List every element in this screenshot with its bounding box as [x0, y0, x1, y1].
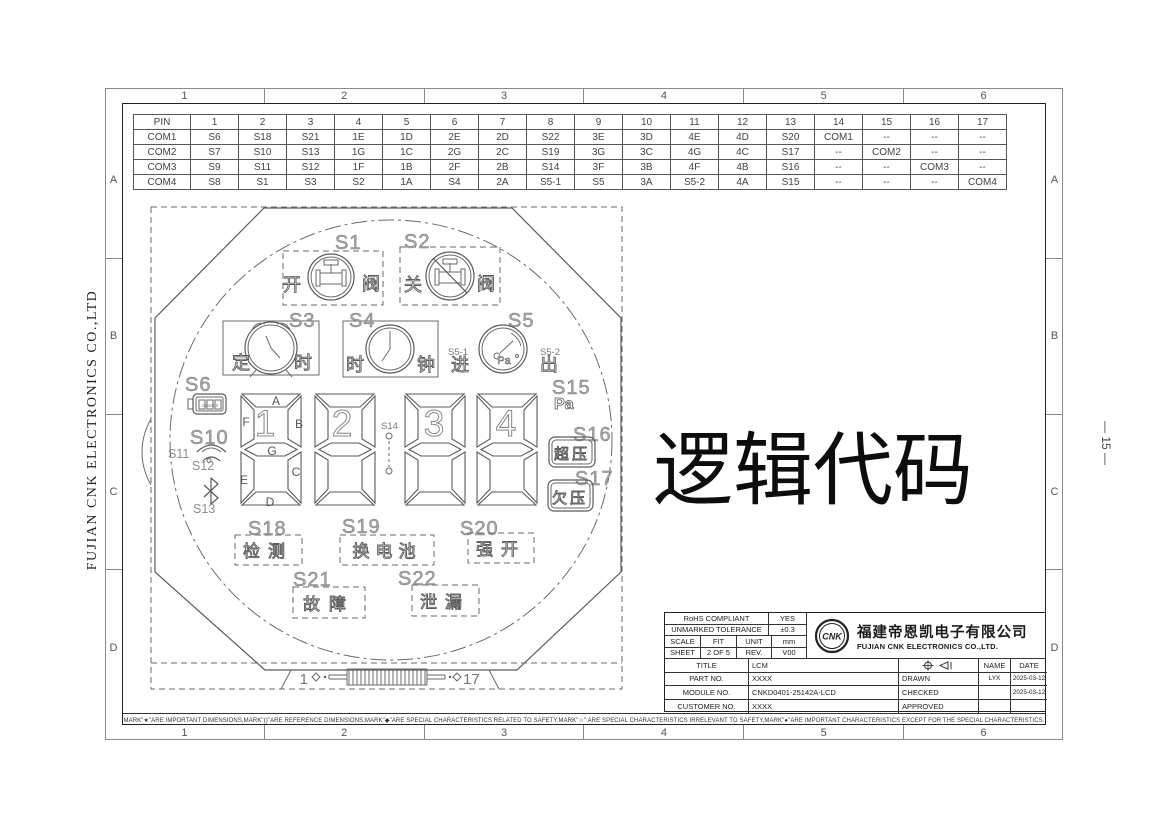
tb-title-value: LCM	[749, 659, 899, 673]
s17-label: S17	[575, 468, 614, 490]
pin-cell: COM4	[959, 175, 1007, 190]
pin-table: PIN1234567891011121314151617COM1S6S18S21…	[133, 114, 1007, 190]
drawing-caption: 逻辑代码	[653, 430, 993, 515]
pin-cell: --	[815, 145, 863, 160]
s4-label: S4	[349, 310, 375, 332]
tolerance-value: ±0.3	[769, 625, 807, 637]
border-col: 6	[903, 88, 1063, 103]
border-row: B	[105, 258, 122, 414]
sheet-value: 2 OF 5	[701, 648, 737, 660]
pin-cell: --	[959, 130, 1007, 145]
rev-value: V00	[772, 648, 807, 660]
segment-s10-s12-signal: S10 S11 S12	[168, 427, 229, 473]
pin-cell: S1	[239, 175, 287, 190]
s3-label: S3	[289, 310, 315, 332]
s16-text: 超压	[554, 446, 590, 463]
pin-cell: 4B	[719, 160, 767, 175]
connector-pin-1: 1	[300, 671, 308, 688]
border-row: C	[105, 414, 122, 570]
unit-label: UNIT	[737, 636, 772, 648]
connector-comb-frame	[347, 669, 427, 685]
pin-cell: 3	[287, 115, 335, 130]
pin-cell: COM1	[815, 130, 863, 145]
pin-cell: S18	[239, 130, 287, 145]
dot-marker-left	[324, 676, 326, 678]
border-rows-right: A B C D	[1046, 103, 1063, 725]
tb-module-value: CNKD0401-25142A-LCD	[749, 686, 899, 700]
tb-name-label: NAME	[979, 659, 1011, 673]
border-row: B	[1046, 258, 1063, 414]
border-row: C	[1046, 414, 1063, 570]
pin-cell: 3G	[575, 145, 623, 160]
unit-value: mm	[772, 636, 807, 648]
pin-cell: 2B	[479, 160, 527, 175]
border-rows-left: A B C D	[105, 103, 122, 725]
pin-cell: 4E	[671, 130, 719, 145]
s22-text: 泄漏	[420, 593, 470, 612]
pin-row-label: COM2	[134, 145, 191, 160]
title-block: RoHS COMPLIANT YES UNMARKED TOLERANCE ±0…	[664, 612, 1046, 712]
tb-approved-label: APPROVED	[899, 700, 979, 714]
segment-letter-g: G	[267, 444, 276, 458]
segment-s2-close-valve: S2 关 阀	[400, 231, 500, 305]
pin-cell: S10	[239, 145, 287, 160]
scale-value: FIT	[701, 636, 737, 648]
s14-label: S14	[381, 421, 398, 432]
page-number-side-text: — 15 —	[1099, 421, 1113, 465]
border-col: 4	[583, 88, 743, 103]
pin-cell: S2	[335, 175, 383, 190]
scale-label: SCALE	[665, 636, 701, 648]
pin-cell: 1A	[383, 175, 431, 190]
pin-cell: S5-1	[527, 175, 575, 190]
pin-cell: --	[959, 160, 1007, 175]
s18-label: S18	[248, 518, 287, 540]
tb-drawn-date: 2025-03-12	[1011, 673, 1047, 687]
s17-text: 欠压	[552, 490, 588, 507]
pin-cell: 4	[335, 115, 383, 130]
pin-cell: 7	[479, 115, 527, 130]
pin-cell: S19	[527, 145, 575, 160]
sheet-label: SHEET	[665, 648, 701, 660]
border-col: 3	[424, 725, 584, 740]
pin-cell: 1G	[335, 145, 383, 160]
company-side-text: FUJIAN CNK ELECTRONICS CO.,LTD	[85, 290, 101, 571]
pin-cell: 1	[191, 115, 239, 130]
s20-label: S20	[460, 518, 499, 540]
tb-checked-name	[979, 686, 1011, 700]
border-col: 5	[743, 88, 903, 103]
tb-part-label: PART NO.	[665, 673, 749, 687]
footnote: MARK"★"ARE IMPORTANT DIMENSIONS,MARK"()"…	[122, 713, 1046, 726]
pin-cell: S22	[527, 130, 575, 145]
segment-s13-bluetooth: S13	[193, 478, 218, 516]
pin-table-row: COM1S6S18S211E1D2E2DS223E3D4E4DS20COM1--…	[134, 130, 1007, 145]
digit-1-number: 1	[255, 403, 276, 444]
fpc-connector: 1 17	[281, 669, 499, 689]
company-logo: CNK	[813, 617, 851, 655]
pin-cell: COM2	[863, 145, 911, 160]
pin-cell: 3C	[623, 145, 671, 160]
border-row: A	[1046, 103, 1063, 258]
segment-s3-timer: S3 定 时	[223, 310, 319, 377]
segment-s1-open-valve: S1 开 阀	[283, 232, 383, 305]
pin-cell: 3B	[623, 160, 671, 175]
s5-label: S5	[508, 310, 534, 332]
s2-text-left: 关	[404, 275, 422, 295]
s2-label: S2	[404, 231, 430, 253]
alarm-clock-icon	[245, 322, 297, 377]
segment-s21-fault: S21 故障	[293, 569, 365, 618]
segment-letter-b: B	[295, 417, 303, 431]
segment-s4-clock: S4 时 钟	[343, 310, 438, 377]
pin-cell: 5	[383, 115, 431, 130]
pin-cell: 2A	[479, 175, 527, 190]
company-name-cn: 福建帝恩凯电子有限公司	[857, 621, 1028, 642]
left-tab-arc	[142, 419, 151, 485]
segment-s5-pressure-gauge: S5 Pa S5-1 S5-2 进 出	[448, 310, 560, 375]
pin-cell: 1D	[383, 130, 431, 145]
pin-cell: 8	[527, 115, 575, 130]
pin-cell: 2F	[431, 160, 479, 175]
pin-row-label: COM1	[134, 130, 191, 145]
valve-open-icon	[308, 254, 354, 300]
lcd-panel-drawing: S1 开 阀 S2	[140, 195, 650, 700]
pin-cell: S12	[287, 160, 335, 175]
pin-cell: S20	[767, 130, 815, 145]
s3-text-left: 定	[232, 353, 250, 373]
rohs-label: RoHS COMPLIANT	[665, 613, 769, 625]
segment-letter-e: E	[240, 473, 248, 487]
projection-symbol-icon	[921, 660, 957, 671]
pin-cell: S16	[767, 160, 815, 175]
pin-cell: --	[815, 160, 863, 175]
pin-cell: --	[863, 130, 911, 145]
pin-cell: 16	[911, 115, 959, 130]
pin-cell: 3F	[575, 160, 623, 175]
s12-label: S12	[192, 459, 214, 473]
pin-cell: S7	[191, 145, 239, 160]
tb-checked-date: 2025-03-12	[1011, 686, 1047, 700]
s19-text: 换电池	[353, 542, 422, 561]
pin-cell: --	[911, 130, 959, 145]
pin-cell: 6	[431, 115, 479, 130]
pin-cell: 3E	[575, 130, 623, 145]
s4-text-right: 钟	[417, 355, 435, 375]
pin-table-row: COM2S7S10S131G1C2G2CS193G3C4G4CS17--COM2…	[134, 145, 1007, 160]
border-col: 3	[424, 88, 584, 103]
tb-customer-label: CUSTOMER NO.	[665, 700, 749, 714]
pin-row-label: COM3	[134, 160, 191, 175]
pin-cell: S14	[527, 160, 575, 175]
digit-4-number: 4	[496, 403, 517, 444]
projection-symbol-cell	[899, 659, 979, 673]
valve-closed-icon	[426, 252, 474, 300]
pin-cell: S5	[575, 175, 623, 190]
pin-cell: 13	[767, 115, 815, 130]
border-col: 4	[583, 725, 743, 740]
tb-drawn-label: DRAWN	[899, 673, 979, 687]
pin-cell: S8	[191, 175, 239, 190]
s1-text-left: 开	[283, 275, 301, 295]
s21-label: S21	[293, 569, 332, 591]
s20-text: 强开	[476, 540, 526, 559]
tb-checked-label: CHECKED	[899, 686, 979, 700]
pin-cell: 11	[671, 115, 719, 130]
s5-text-left: 进	[451, 355, 469, 375]
logo-text: CNK	[822, 631, 843, 641]
pin-cell: 14	[815, 115, 863, 130]
border-col: 1	[105, 725, 264, 740]
pin-cell: 12	[719, 115, 767, 130]
pin-cell: S21	[287, 130, 335, 145]
pin-row-label: PIN	[134, 115, 191, 130]
segment-s20-force-open: S20 强开	[460, 518, 534, 563]
pin-cell: 1E	[335, 130, 383, 145]
border-col: 2	[264, 88, 424, 103]
border-col: 6	[903, 725, 1063, 740]
segment-s19-replace-battery: S19 换电池	[340, 516, 434, 565]
pin-cell: S6	[191, 130, 239, 145]
segment-s18-detect: S18 检测	[235, 518, 302, 565]
border-col: 5	[743, 725, 903, 740]
pin-cell: 3D	[623, 130, 671, 145]
border-columns-top: 1 2 3 4 5 6	[105, 88, 1063, 103]
s3-text-right: 时	[294, 353, 312, 373]
s4-text-left: 时	[346, 355, 364, 375]
pin-cell: 2C	[479, 145, 527, 160]
s18-text: 检测	[243, 542, 293, 561]
pin-cell: 1B	[383, 160, 431, 175]
pin-table-row: COM3S9S11S121F1B2F2BS143F3B4F4BS16----CO…	[134, 160, 1007, 175]
rev-label: REV.	[737, 648, 772, 660]
pin-cell: 17	[959, 115, 1007, 130]
pin-cell: --	[911, 175, 959, 190]
pin-cell: S13	[287, 145, 335, 160]
tb-customer-value: XXXX	[749, 700, 899, 714]
pin-cell: 1C	[383, 145, 431, 160]
digit-3-number: 3	[424, 403, 445, 444]
s15-text: Pa	[554, 396, 574, 413]
pin-row-label: COM4	[134, 175, 191, 190]
border-row: D	[105, 569, 122, 725]
tolerance-label: UNMARKED TOLERANCE	[665, 625, 769, 637]
digit-2-number: 2	[332, 403, 353, 444]
pin-cell: 2D	[479, 130, 527, 145]
pin-cell: 2G	[431, 145, 479, 160]
border-col: 2	[264, 725, 424, 740]
s22-label: S22	[398, 568, 437, 590]
pin-cell: 15	[863, 115, 911, 130]
pin-cell: 2	[239, 115, 287, 130]
border-row: D	[1046, 569, 1063, 725]
connector-pins	[349, 669, 425, 685]
connector-pin-17: 17	[463, 671, 480, 688]
drawing-sheet: FUJIAN CNK ELECTRONICS CO.,LTD — 15 — 1 …	[0, 0, 1169, 827]
pin-cell: 4G	[671, 145, 719, 160]
tb-approved-date	[1011, 700, 1047, 714]
tb-approved-name	[979, 700, 1011, 714]
s13-label: S13	[193, 502, 215, 516]
pin-cell: S3	[287, 175, 335, 190]
border-row: A	[105, 103, 122, 258]
pin-cell: 10	[623, 115, 671, 130]
pin-cell: 4D	[719, 130, 767, 145]
clock-icon	[366, 325, 414, 373]
s11-label: S11	[168, 447, 189, 461]
company-area: CNK 福建帝恩凯电子有限公司 FUJIAN CNK ELECTRONICS C…	[807, 613, 1045, 659]
company-names: 福建帝恩凯电子有限公司 FUJIAN CNK ELECTRONICS CO.,L…	[857, 621, 1028, 651]
pin-cell: --	[863, 175, 911, 190]
segment-s16-overpressure: S16 超压	[549, 424, 612, 467]
s1-label: S1	[335, 232, 361, 254]
border-col: 1	[105, 88, 264, 103]
border-columns-bottom: 1 2 3 4 5 6	[105, 725, 1063, 740]
tb-drawn-name: LYX	[979, 673, 1011, 687]
pin-cell: 3A	[623, 175, 671, 190]
segment-letter-d: D	[266, 495, 275, 509]
pin-table-row: COM4S8S1S3S21AS42AS5-1S53AS5-24AS15-----…	[134, 175, 1007, 190]
segment-s6-battery: S6 S7S8S9	[185, 374, 226, 414]
s5-gauge-unit: Pa	[497, 355, 511, 367]
viewing-area-circle	[170, 220, 612, 660]
diamond-marker-right	[453, 673, 461, 681]
segment-s15-pa-unit: S15 Pa	[552, 377, 591, 413]
pin-cell: --	[959, 145, 1007, 160]
segment-s14-colon: S14	[381, 421, 398, 474]
pin-cell: COM3	[911, 160, 959, 175]
pin-cell: 9	[575, 115, 623, 130]
tb-part-value: XXXX	[749, 673, 899, 687]
tb-module-label: MODULE NO.	[665, 686, 749, 700]
bluetooth-icon	[204, 478, 218, 504]
pin-cell: --	[911, 145, 959, 160]
pin-cell: --	[863, 160, 911, 175]
s6-label: S6	[185, 374, 211, 396]
s21-text: 故障	[303, 595, 355, 614]
pin-cell: 4C	[719, 145, 767, 160]
s6-bars-label: S7S8S9	[202, 403, 219, 408]
pin-cell: 4F	[671, 160, 719, 175]
dot-marker-right	[449, 676, 451, 678]
pin-cell: S9	[191, 160, 239, 175]
segment-s17-underpressure: S17 欠压	[548, 468, 614, 511]
pin-cell: 1F	[335, 160, 383, 175]
pin-cell: S4	[431, 175, 479, 190]
diamond-marker-left	[312, 673, 320, 681]
pin-cell: S11	[239, 160, 287, 175]
segment-letter-a: A	[272, 394, 280, 408]
tb-title-label: TITLE	[665, 659, 749, 673]
pin-cell: S15	[767, 175, 815, 190]
pin-header-row: PIN1234567891011121314151617	[134, 115, 1007, 130]
rohs-value: YES	[769, 613, 807, 625]
segment-s22-leak: S22 泄漏	[398, 568, 479, 616]
pin-cell: --	[815, 175, 863, 190]
pin-cell: S5-2	[671, 175, 719, 190]
segment-letter-f: F	[242, 415, 249, 429]
segment-letter-c: C	[292, 465, 301, 479]
s5-text-right: 出	[540, 355, 558, 375]
pin-cell: S17	[767, 145, 815, 160]
company-name-en: FUJIAN CNK ELECTRONICS CO.,LTD.	[857, 642, 1028, 651]
tb-date-label: DATE	[1011, 659, 1047, 673]
s1-text-right: 阀	[362, 274, 380, 294]
pin-cell: 4A	[719, 175, 767, 190]
pin-cell: 2E	[431, 130, 479, 145]
s2-text-right: 阀	[477, 274, 495, 294]
